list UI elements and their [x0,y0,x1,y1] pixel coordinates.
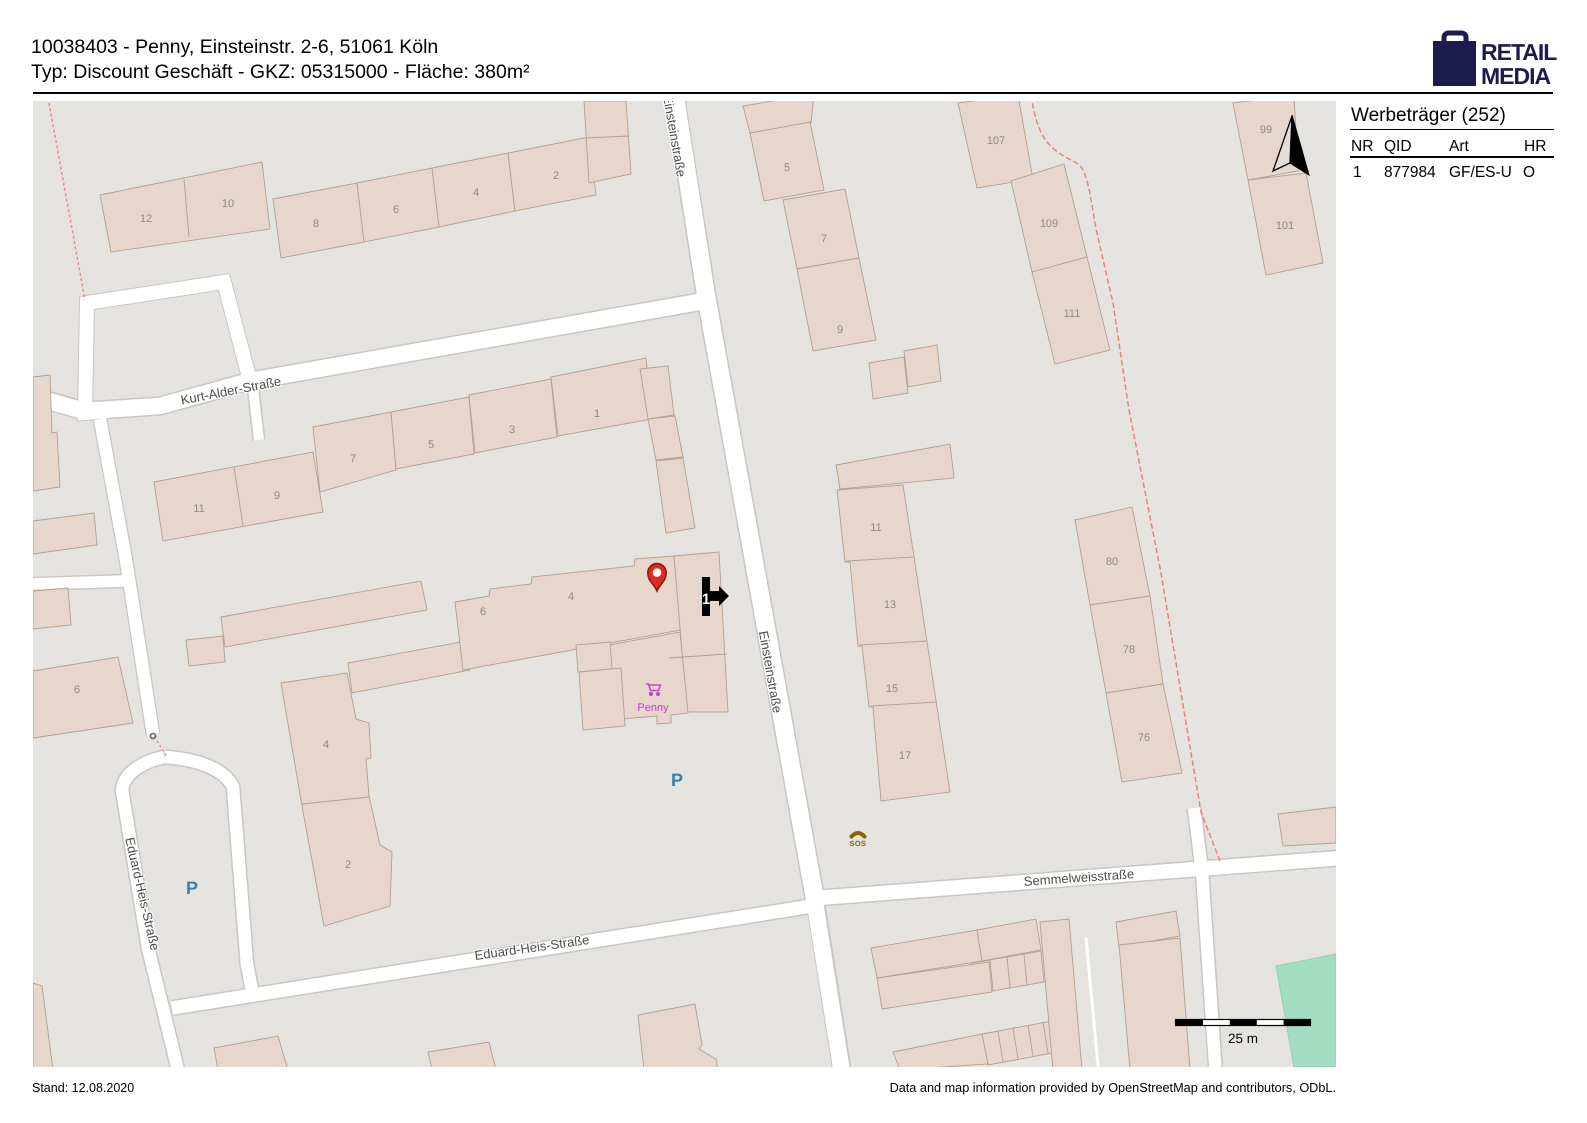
svg-text:76: 76 [1138,732,1150,744]
svg-text:4: 4 [568,591,574,603]
svg-text:11: 11 [870,522,881,534]
svg-text:80: 80 [1106,556,1118,568]
svg-text:78: 78 [1123,644,1135,656]
svg-text:4: 4 [473,187,479,199]
svg-text:Penny: Penny [637,702,669,714]
svg-text:10: 10 [222,198,234,210]
svg-text:6: 6 [480,606,486,618]
svg-text:8: 8 [313,218,319,230]
svg-text:101: 101 [1276,220,1294,232]
svg-text:6: 6 [74,684,80,696]
svg-text:17: 17 [899,750,911,762]
svg-text:RETAIL: RETAIL [1481,39,1557,65]
svg-text:P: P [186,878,198,898]
svg-text:6: 6 [393,204,399,216]
svg-text:109: 109 [1040,218,1058,230]
svg-text:13: 13 [884,599,896,611]
svg-text:MEDIA: MEDIA [1481,63,1551,89]
svg-text:99: 99 [1260,124,1272,136]
svg-text:11: 11 [193,503,204,515]
svg-text:111: 111 [1064,308,1081,320]
svg-text:1: 1 [702,591,710,608]
svg-text:7: 7 [350,453,356,465]
svg-text:12: 12 [140,213,152,225]
svg-text:P: P [671,770,683,790]
svg-text:107: 107 [987,135,1005,147]
svg-text:1: 1 [594,408,600,420]
svg-text:7: 7 [821,233,827,245]
svg-text:15: 15 [886,683,898,695]
svg-text:SOS: SOS [850,839,867,848]
svg-text:9: 9 [837,324,843,336]
svg-text:9: 9 [274,490,280,502]
svg-text:3: 3 [509,424,515,436]
svg-text:25 m: 25 m [1228,1031,1258,1046]
svg-text:2: 2 [553,170,559,182]
svg-text:5: 5 [784,162,790,174]
svg-text:4: 4 [323,739,329,751]
svg-text:2: 2 [345,859,351,871]
svg-text:5: 5 [428,439,434,451]
